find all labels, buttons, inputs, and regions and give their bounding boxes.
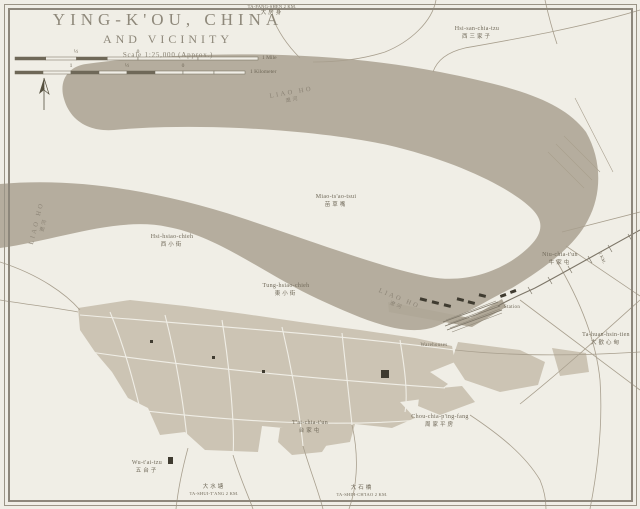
map-scale-note: Scale 1:25,000 (Approx.)	[53, 51, 283, 59]
km-unit-label: 1 Kilometer	[250, 69, 276, 75]
place-label-tung-hsiao-chieh: Tung-hsiao-chieh 東小街	[263, 283, 310, 297]
mile-unit-label: 1 Mile	[262, 55, 277, 61]
mile-tick-half: ½	[74, 49, 78, 55]
edge-label-ta-shui-tang: 大水塘 TA-SHUI-T'ANG 2 KM.	[189, 484, 238, 497]
poi-label-warehouses: Warehouses	[420, 343, 447, 349]
place-label-tai-chia-tun: T'ai-chia-t'un 台家屯	[292, 420, 328, 434]
place-label-ta-fang-shen: TA-FANG-SHEN 2 KM. 大房身	[248, 4, 297, 17]
km-tick-half: ½	[125, 63, 129, 69]
place-label-miao-tsao-tsui: Miao-ts'ao-tsui 苗草嘴	[316, 194, 357, 208]
edge-label-ta-shih-chiao: 大石橋 TA-SHIH-CH'IAO 2 KM.	[336, 485, 387, 498]
place-label-hsi-hsiao-chieh: Hsi-hsiao-chieh 西小街	[151, 234, 194, 248]
place-label-niu-chia-tun: Niu-chia-t'un 牛家屯	[542, 252, 578, 266]
poi-label-station: Station	[504, 305, 520, 311]
title-block: YING-K'OU, CHINA AND VICINITY Scale 1:25…	[53, 10, 283, 59]
place-label-ta-huan-hsin-tien: Ta-huan-hsin-tien 大歡心甸	[582, 332, 630, 346]
place-label-wu-tai-tzu: Wu-t'ai-tzu 五台子	[132, 460, 162, 474]
km-tick-one: 1	[70, 63, 73, 69]
place-label-hsi-san-chia-tzu: Hsi-san-chia-tzu 西三家子	[455, 26, 499, 40]
map-sheet: YING-K'OU, CHINA AND VICINITY Scale 1:25…	[0, 0, 640, 509]
km-tick-zero: 0	[182, 63, 185, 69]
mile-tick-zero: 0	[137, 49, 140, 55]
place-label-chou-chia-ping-fang: Chou-chia-p'ing-fang 周家平房	[411, 414, 468, 428]
map-subtitle: AND VICINITY	[53, 32, 283, 47]
